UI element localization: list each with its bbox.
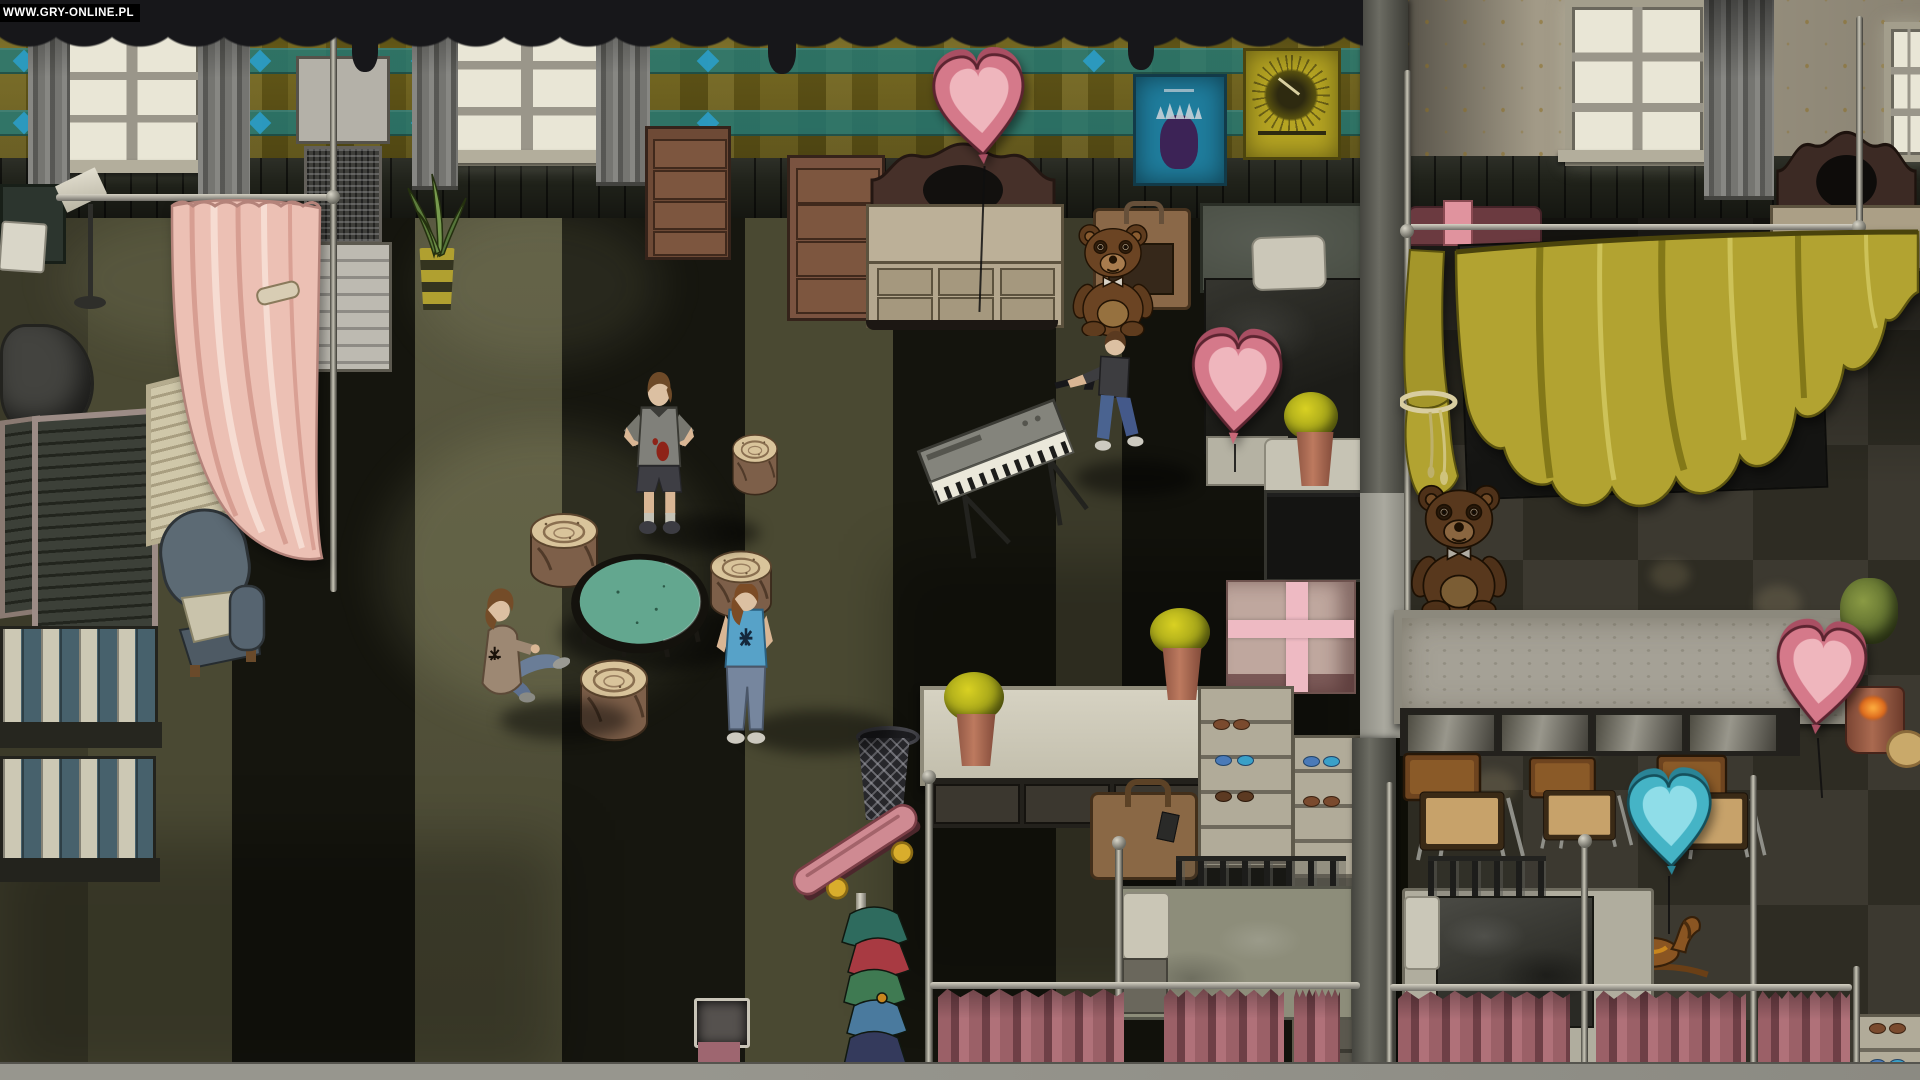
- stump-stool[interactable]: [731, 430, 779, 502]
- shoe: [1869, 1023, 1886, 1034]
- shoe: [1889, 1023, 1906, 1034]
- flip-flop: [1215, 755, 1232, 766]
- mattress-frame: [0, 722, 162, 748]
- dresser-top: [869, 207, 1061, 264]
- teddy-bear[interactable]: [1064, 220, 1162, 336]
- dresser-base: [866, 320, 1058, 330]
- briefcase-handle: [1125, 779, 1171, 807]
- blue-poster[interactable]: [1133, 74, 1227, 186]
- bench-panel: [1406, 713, 1496, 753]
- flip-flop: [1889, 1059, 1906, 1070]
- valance-drip: [352, 28, 378, 72]
- shoe: [1323, 796, 1340, 807]
- shoe: [1303, 796, 1320, 807]
- privacy-curtain[interactable]: [1164, 986, 1284, 1080]
- pillow: [1122, 892, 1170, 960]
- pole-joint: [1578, 834, 1592, 848]
- poster-figure: [1160, 115, 1198, 169]
- gray-curtain[interactable]: [412, 0, 458, 190]
- pillow: [1404, 896, 1440, 970]
- light-spot: [1650, 560, 1690, 590]
- shoe-shelf[interactable]: [1198, 686, 1294, 868]
- flip-flop: [1303, 756, 1320, 767]
- poster-nest: [1264, 69, 1318, 121]
- gift-ribbon-horizontal: [1228, 620, 1354, 638]
- drawer[interactable]: [934, 784, 1020, 824]
- floor-lamp-base: [74, 296, 106, 309]
- striped-mattress[interactable]: [0, 626, 158, 732]
- pink-heart-balloon[interactable]: [1169, 323, 1303, 454]
- window-sill: [1558, 150, 1708, 162]
- privacy-curtain[interactable]: [1596, 988, 1746, 1080]
- window-panes: [65, 33, 199, 163]
- hanging-clothes[interactable]: [836, 902, 932, 1080]
- poster-flute: [1258, 131, 1326, 135]
- dark-crate[interactable]: [1264, 490, 1364, 582]
- window-panes: [1572, 7, 1703, 159]
- privacy-curtain[interactable]: [1758, 988, 1850, 1080]
- mattress-frame: [0, 858, 160, 882]
- privacy-curtain[interactable]: [938, 986, 1124, 1080]
- aloe-plant[interactable]: [404, 168, 470, 260]
- small-chest-lid[interactable]: [694, 998, 750, 1048]
- ornate-headboard[interactable]: [1773, 126, 1920, 214]
- pole: [1853, 966, 1860, 1080]
- window-sill: [50, 160, 212, 173]
- pole-joint: [922, 770, 936, 784]
- shoe-shelf[interactable]: [1856, 1014, 1920, 1080]
- valance-drip: [768, 26, 796, 74]
- balloon-string: [1668, 876, 1670, 934]
- bench-panel: [1594, 713, 1684, 753]
- gray-curtain[interactable]: [28, 0, 70, 196]
- round-teal-table[interactable]: [568, 550, 712, 660]
- flip-flop: [1869, 1059, 1886, 1070]
- window-sill: [440, 150, 604, 163]
- blue-heart-balloon[interactable]: [1614, 764, 1726, 884]
- folding-screen-panel[interactable]: [32, 408, 158, 653]
- small-chest-base: [698, 1042, 740, 1070]
- pole: [1386, 782, 1393, 1080]
- window-panes: [455, 19, 599, 159]
- kid-with-rifle[interactable]: [1052, 330, 1164, 482]
- curtain-rail: [1390, 984, 1852, 991]
- stump-stool[interactable]: [578, 654, 650, 750]
- watermark: WWW.GRY-ONLINE.PL: [0, 4, 140, 22]
- floor-lamp-pole: [88, 204, 93, 302]
- window[interactable]: [1565, 0, 1710, 166]
- pillow[interactable]: [1251, 235, 1327, 292]
- gift-box[interactable]: [1226, 580, 1356, 694]
- kid-blue-shirt[interactable]: [714, 584, 778, 748]
- pole: [1750, 775, 1757, 1080]
- game-scene: WWW.GRY-ONLINE.PL: [0, 0, 1920, 1080]
- teddy-bear[interactable]: [1400, 480, 1518, 618]
- bench-panel: [1500, 713, 1590, 753]
- flip-flop: [1237, 755, 1254, 766]
- shoe: [1233, 719, 1250, 730]
- kid-hands-on-hips[interactable]: [614, 372, 704, 534]
- small-chest[interactable]: [645, 126, 731, 260]
- curtain-rail: [930, 982, 1360, 989]
- pink-heart-balloon[interactable]: [1753, 613, 1887, 747]
- privacy-curtain[interactable]: [1294, 986, 1340, 1080]
- ac-top-box: [296, 56, 390, 144]
- flip-flop: [1323, 756, 1340, 767]
- poster-title: [1164, 89, 1194, 92]
- pole: [925, 772, 933, 1080]
- balloon-string: [1817, 738, 1823, 798]
- cream-dresser[interactable]: [866, 204, 1064, 328]
- kid-sitting[interactable]: [468, 586, 570, 738]
- pole-joint: [1112, 836, 1126, 850]
- round-basket[interactable]: [1886, 730, 1920, 768]
- gray-curtain[interactable]: [1704, 0, 1774, 200]
- shoe: [1215, 791, 1232, 802]
- poster-crown: [1156, 103, 1202, 119]
- window[interactable]: [58, 26, 206, 170]
- shoe: [1237, 791, 1254, 802]
- briefcase-tag: [1156, 811, 1179, 842]
- gray-curtain[interactable]: [198, 0, 250, 199]
- valance-drip: [1128, 28, 1154, 70]
- pole: [1856, 16, 1863, 246]
- privacy-curtain[interactable]: [1398, 988, 1570, 1080]
- pink-heart-balloon[interactable]: [914, 42, 1046, 176]
- window[interactable]: [448, 12, 606, 166]
- shoe: [1213, 719, 1230, 730]
- pole: [1581, 838, 1588, 1080]
- towel[interactable]: [0, 220, 48, 273]
- pink-curtain[interactable]: [166, 196, 336, 568]
- yellow-poster[interactable]: [1243, 48, 1341, 160]
- striped-mattress[interactable]: [0, 756, 156, 870]
- gray-curtain[interactable]: [596, 0, 650, 186]
